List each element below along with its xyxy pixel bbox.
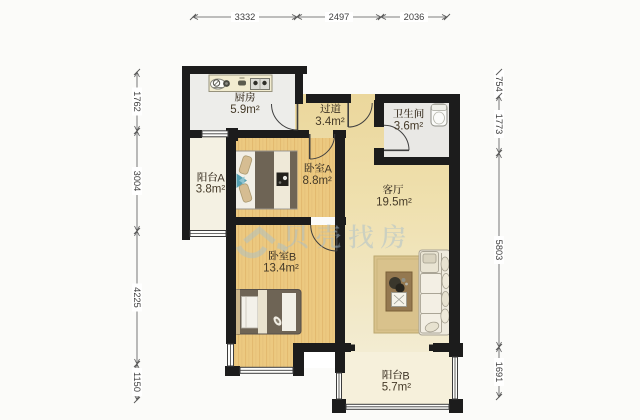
svg-text:5803: 5803 <box>494 240 504 261</box>
svg-text:B: B <box>289 251 296 263</box>
svg-text:8.8m²: 8.8m² <box>302 175 332 187</box>
svg-text:2497: 2497 <box>329 12 350 22</box>
svg-text:1762: 1762 <box>132 91 142 112</box>
svg-text:A: A <box>325 164 333 176</box>
svg-text:3332: 3332 <box>235 12 256 22</box>
svg-text:B: B <box>402 370 409 382</box>
svg-text:2036: 2036 <box>404 12 425 22</box>
svg-text:3.8m²: 3.8m² <box>196 184 226 196</box>
svg-text:5.9m²: 5.9m² <box>230 104 260 116</box>
svg-text:1773: 1773 <box>494 114 504 135</box>
svg-text:1691: 1691 <box>494 362 504 383</box>
svg-text:3.6m²: 3.6m² <box>394 121 424 133</box>
svg-text:4225: 4225 <box>132 287 142 308</box>
svg-text:13.4m²: 13.4m² <box>263 263 299 275</box>
svg-text:19.5m²: 19.5m² <box>376 197 412 209</box>
svg-text:5.7m²: 5.7m² <box>382 382 412 394</box>
svg-text:1150: 1150 <box>132 372 142 392</box>
svg-text:754: 754 <box>494 76 504 92</box>
svg-text:3004: 3004 <box>132 171 142 192</box>
svg-text:3.4m²: 3.4m² <box>315 116 345 128</box>
